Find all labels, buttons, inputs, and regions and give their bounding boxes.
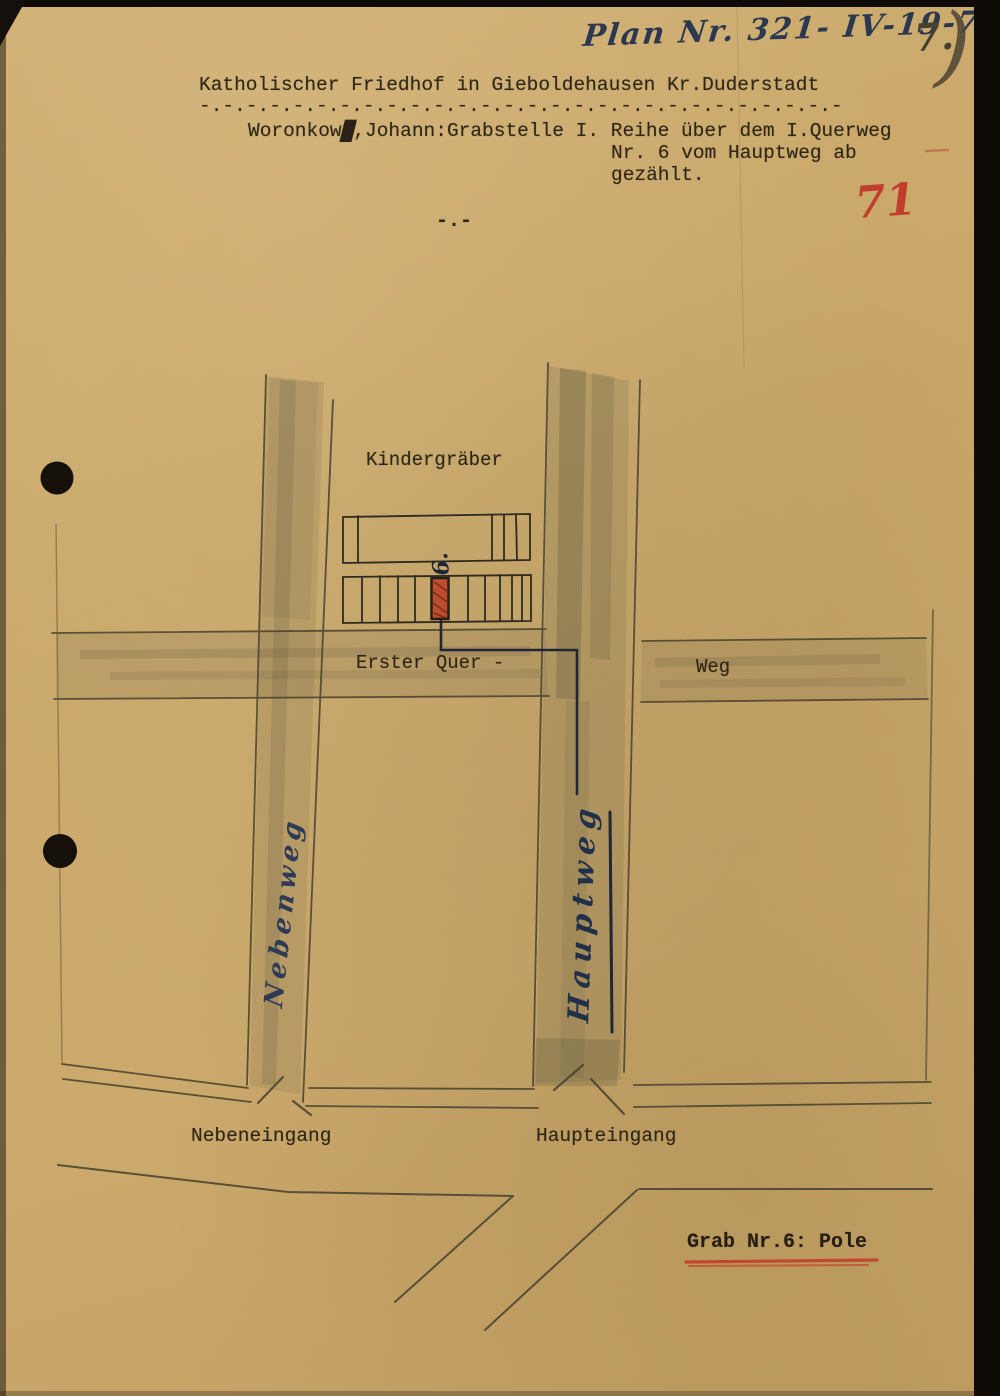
small-red-dash [926,150,948,151]
road-diagonal-left [395,1196,513,1302]
record-surname: Woronkow [248,120,342,142]
red-marks [686,150,948,1266]
scanned-cemetery-plan-page: Plan Nr. 321- IV-19-7 7. ) 71 Katholisch… [0,0,1000,1396]
grave-row-top-divider [516,514,517,560]
grave-note-red-underline [686,1260,877,1262]
left-boundary-line [56,524,62,1064]
section-separator: -.- [436,210,472,233]
record-line-1-rest: ,Johann:Grabstelle I. Reihe über dem I.Q… [353,120,891,142]
record-line-1: Woronkow█,Johann:Grabstelle I. Reihe übe… [248,120,892,142]
marked-grave [432,578,449,619]
marked-grave-number-label: 6. [427,551,455,576]
grave-note: Grab Nr.6: Pole [687,1231,867,1254]
nebeneingang-label: Nebeneingang [191,1125,331,1147]
title-dashed-underline: -.-.-.-.-.-.-.-.-.-.-.-.-.-.-.-.-.-.-.-.… [199,95,844,117]
hole-punch-top [41,462,74,495]
record-line-3: gezählt. [611,164,705,186]
gate-shading [534,1038,620,1086]
haupteingang-label: Haupteingang [536,1125,676,1147]
boundary-wall-left-outer [62,1064,248,1088]
red-number: 71 [853,174,918,229]
grave-note-red-underline [689,1265,868,1266]
road-diagonal-right [485,1190,637,1330]
road-line-left [58,1165,513,1196]
nebeneingang-gate-tick [293,1101,311,1115]
nebenweg-shading-streak [262,378,318,620]
weg-label: Weg [696,656,730,678]
kindergraeber-label: Kindergräber [366,449,503,471]
hole-punch-bottom [43,834,77,868]
hauptweg-shading-streak [590,373,614,660]
right-weg-shading [641,639,928,702]
cemetery-plan-drawing [0,0,1000,1396]
paper-crease [737,6,744,368]
record-line-2: Nr. 6 vom Hauptweg ab [611,142,857,164]
erster-querweg-label: Erster Quer - [356,652,504,674]
boundary-wall-left-inner [63,1079,251,1102]
pencil-shading [56,366,928,1094]
page-mark-paren: ) [934,1,973,91]
page-title: Katholischer Friedhof in Gieboldehausen … [199,74,819,96]
boundary-wall-right-inner [634,1103,931,1107]
boundary-wall-mid-outer [309,1088,534,1089]
boundary-wall-right-outer [634,1082,931,1085]
hauptweg-underline-stroke [610,812,612,1032]
boundary-wall-mid-inner [306,1106,538,1108]
